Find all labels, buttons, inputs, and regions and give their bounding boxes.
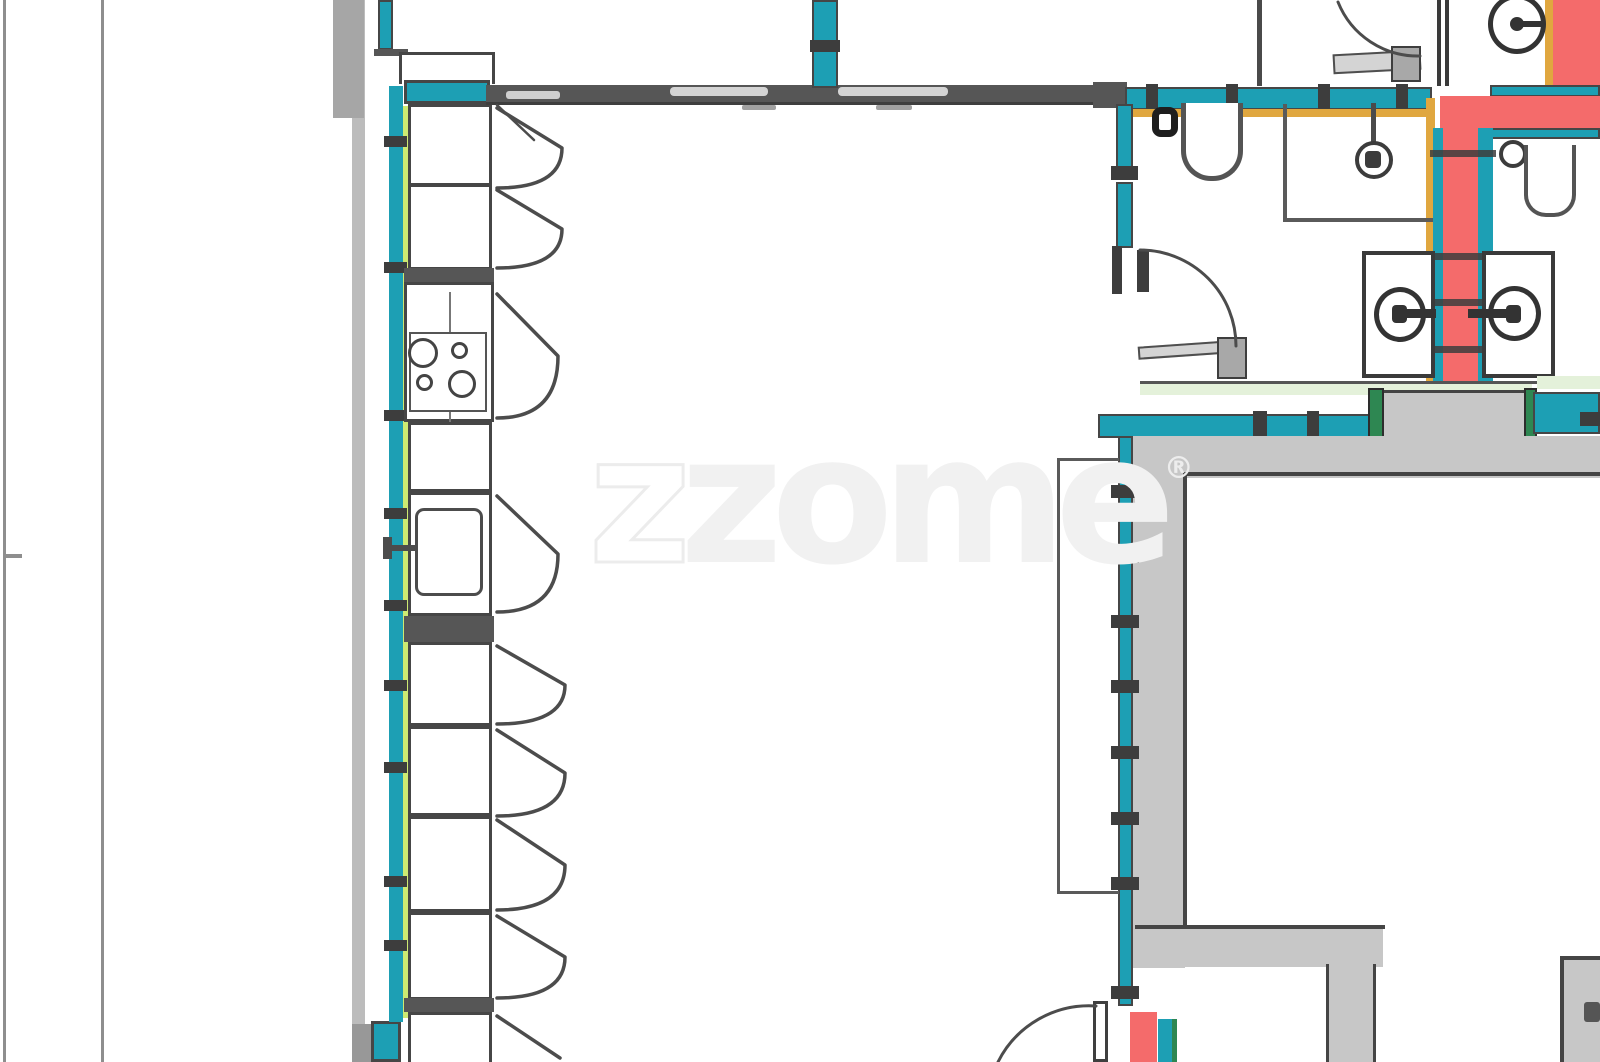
wall-diagonal-line: [497, 105, 534, 140]
cabinet-door-swing: [497, 730, 565, 816]
door-arc: [1338, 2, 1420, 56]
cabinet-door-swing: [497, 820, 565, 910]
cabinet-door-swing: [497, 916, 565, 998]
watermark: zzome®: [588, 412, 1194, 590]
cabinet-door-swing: [497, 294, 558, 418]
door-arc: [998, 1006, 1096, 1062]
cabinet-door-swing: [497, 108, 562, 188]
door-arc: [1140, 250, 1236, 346]
watermark-letter: z: [588, 397, 680, 604]
cabinet-door-swing: [497, 496, 558, 612]
watermark-text: zome: [680, 397, 1164, 604]
floor-plan: zzome®: [0, 0, 1600, 1062]
watermark-registered: ®: [1164, 451, 1194, 486]
cabinet-door-swing: [497, 190, 562, 268]
cabinet-door-swing: [497, 646, 565, 724]
cabinet-door-swing: [497, 1016, 560, 1058]
